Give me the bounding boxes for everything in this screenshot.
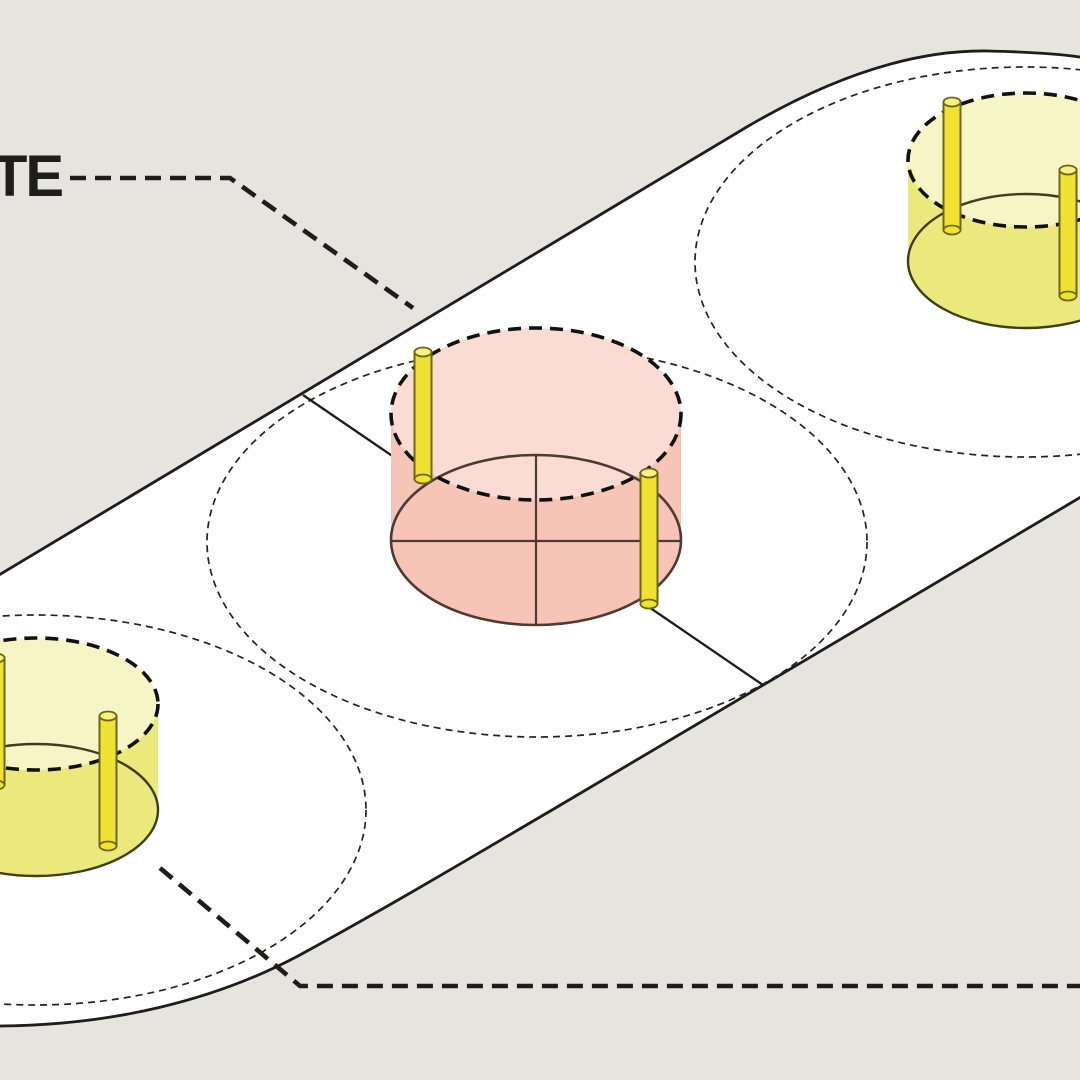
diagram-stage [0,0,1080,1080]
callout-label: TE [0,148,62,206]
cylinder-pink-center [391,328,681,625]
pole-icon [1060,166,1077,301]
leader-line-top [70,178,413,308]
pole-icon [100,712,117,851]
site-diagram [0,0,1080,1080]
pole-icon [0,654,5,790]
pole-icon [641,469,658,609]
pole-icon [415,348,432,484]
pole-icon [944,98,961,235]
cylinder-yellow-lower-left [0,638,158,876]
cylinder-yellow-upper-right [908,93,1080,328]
